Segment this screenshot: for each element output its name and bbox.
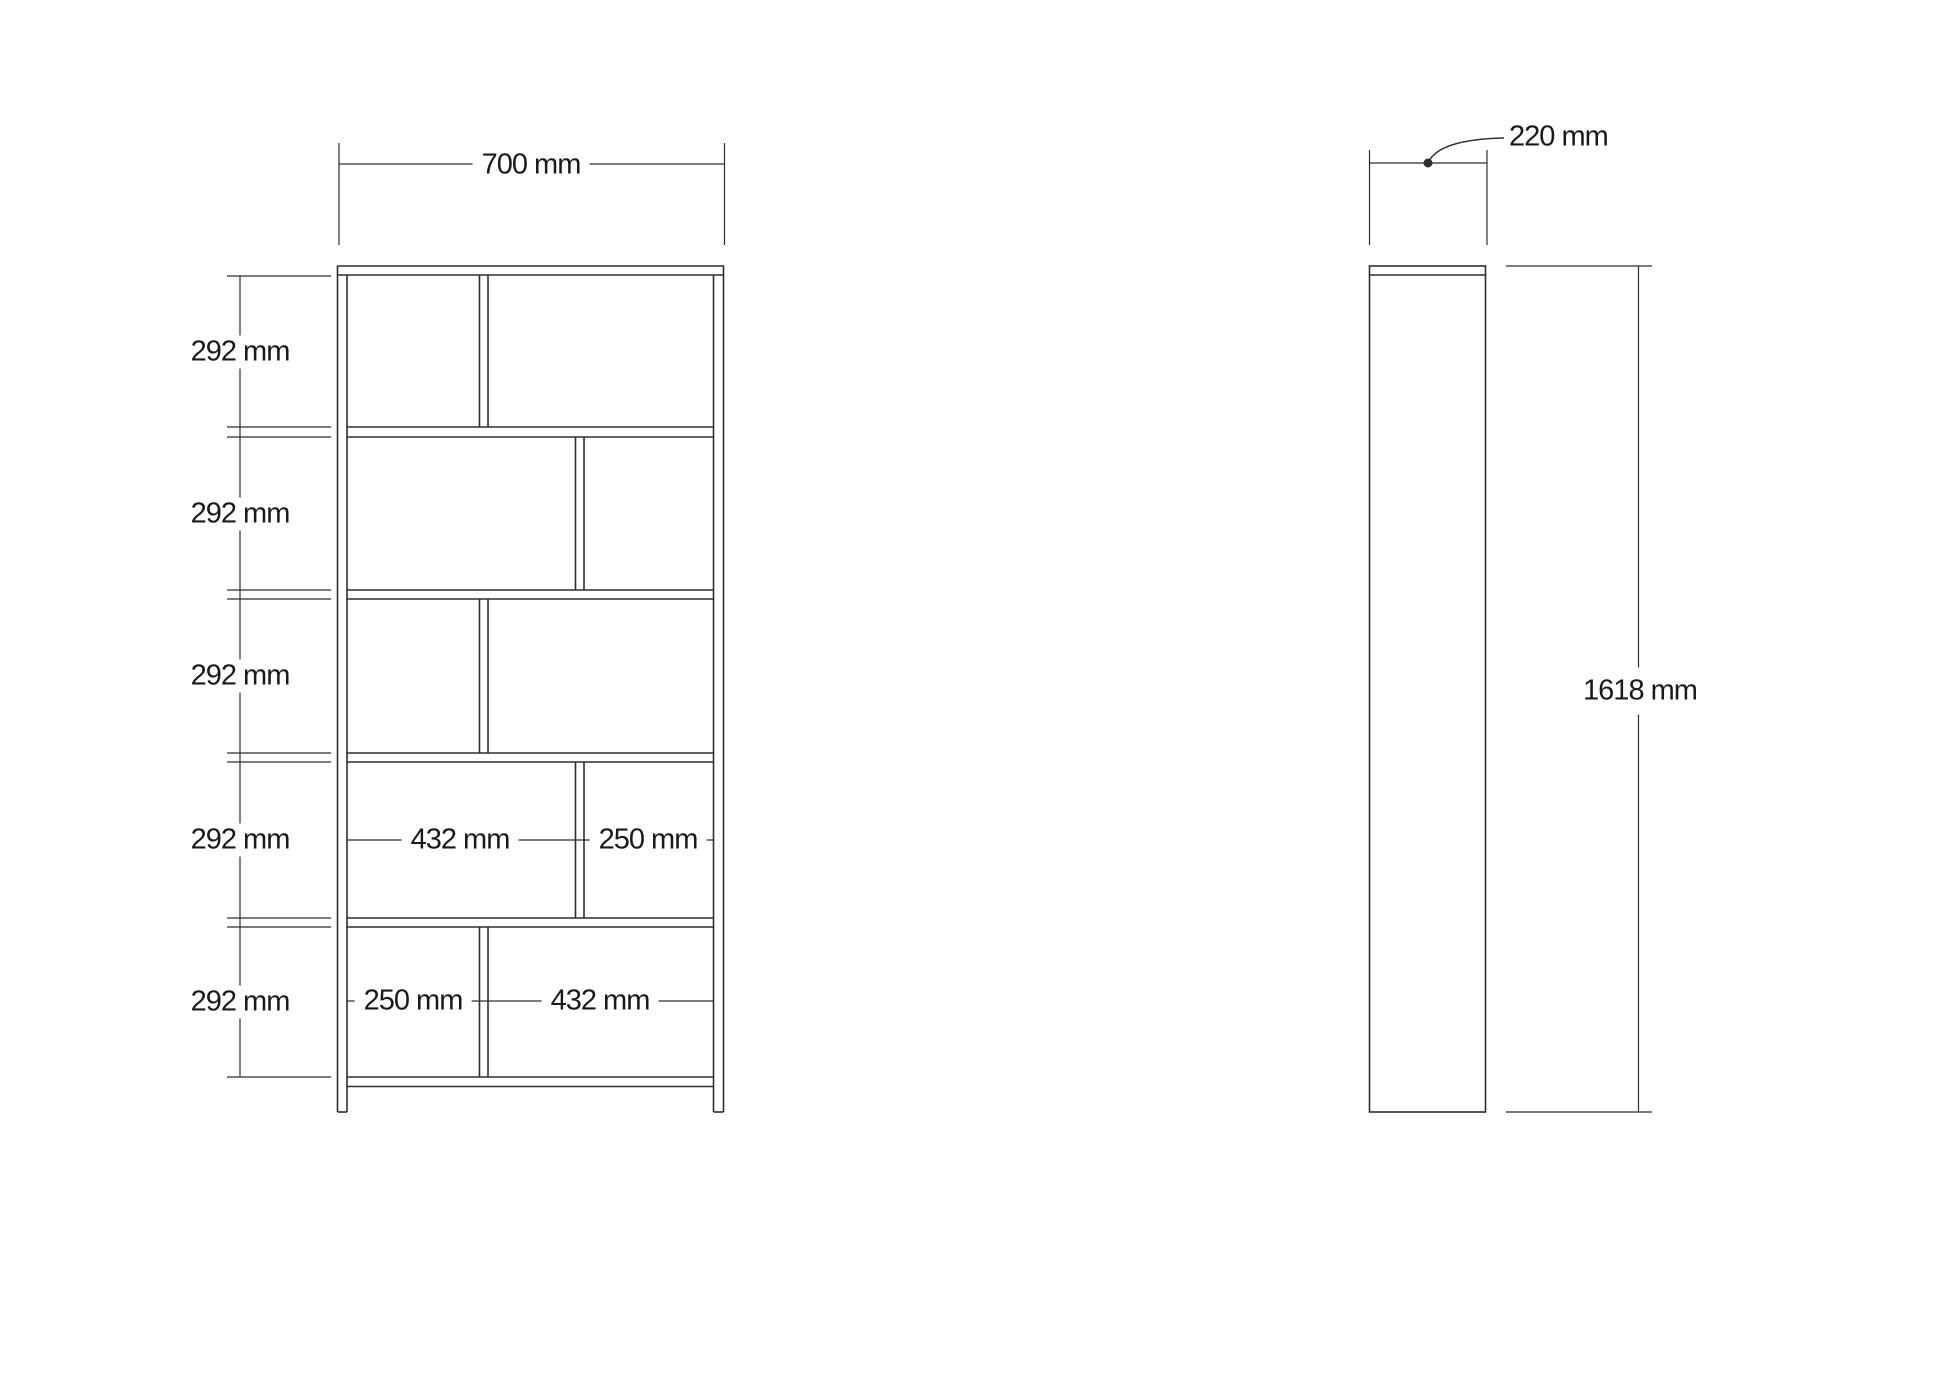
front-row3-height-dimension-label: 292 mm <box>182 660 299 693</box>
front-row4-right-compartment-label: 250 mm <box>590 824 707 857</box>
front-row5-height-dimension-label: 292 mm <box>182 986 299 1019</box>
front-row1-height-dimension-label: 292 mm <box>182 336 299 369</box>
technical-drawing-canvas: 700 mm 292 mm 292 mm 292 mm 292 mm 292 m… <box>0 0 1946 1376</box>
front-row5-left-compartment-label: 250 mm <box>355 985 472 1018</box>
front-row4-height-dimension-label: 292 mm <box>182 824 299 857</box>
side-height-dimension-label: 1618 mm <box>1579 668 1701 715</box>
front-row5-right-compartment-label: 432 mm <box>542 985 659 1018</box>
front-width-dimension-label: 700 mm <box>473 149 590 182</box>
side-depth-dimension <box>1370 138 1505 245</box>
leader-line <box>1428 138 1504 163</box>
side-view-panel <box>1370 266 1486 1112</box>
front-row4-left-compartment-label: 432 mm <box>402 824 519 857</box>
side-depth-dimension-label: 220 mm <box>1505 121 1612 154</box>
front-view-dividers <box>480 275 585 1077</box>
front-row2-height-dimension-label: 292 mm <box>182 498 299 531</box>
